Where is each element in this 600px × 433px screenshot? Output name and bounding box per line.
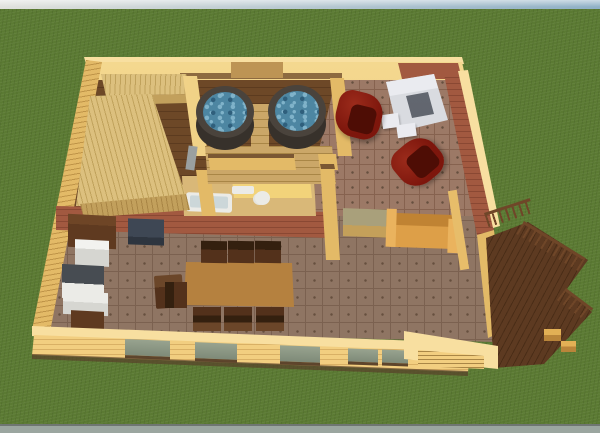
front-window-2	[195, 342, 237, 363]
sofa-arm-left	[386, 209, 397, 247]
dining-chair-5	[224, 307, 252, 331]
refrigerator	[75, 239, 109, 267]
armchair-1-seat	[346, 103, 378, 135]
sofa-seat	[389, 225, 454, 249]
deck-stool-2	[561, 341, 576, 352]
hot-tub-1-water	[203, 92, 247, 132]
dining-chair-6	[256, 307, 284, 331]
toilet	[255, 191, 270, 205]
front-window-4	[348, 348, 378, 365]
fireplace-hearth-block-2	[396, 123, 417, 139]
kitchen-island	[128, 218, 164, 245]
front-window-1	[125, 339, 170, 360]
dining-chair-1	[201, 241, 227, 263]
front-window-3	[280, 345, 320, 366]
dining-chair-2	[228, 241, 254, 263]
building	[0, 0, 600, 433]
dining-chair-3	[255, 241, 281, 263]
dining-chair-4	[193, 307, 221, 331]
deck-stool-1	[544, 329, 561, 341]
back-door-inset	[231, 62, 283, 78]
render-viewport	[0, 0, 600, 433]
armchair-2-seat	[404, 143, 442, 180]
bathroom-sink	[232, 186, 254, 194]
dining-chair-7	[165, 282, 187, 308]
hot-tub-2-water	[275, 91, 319, 131]
